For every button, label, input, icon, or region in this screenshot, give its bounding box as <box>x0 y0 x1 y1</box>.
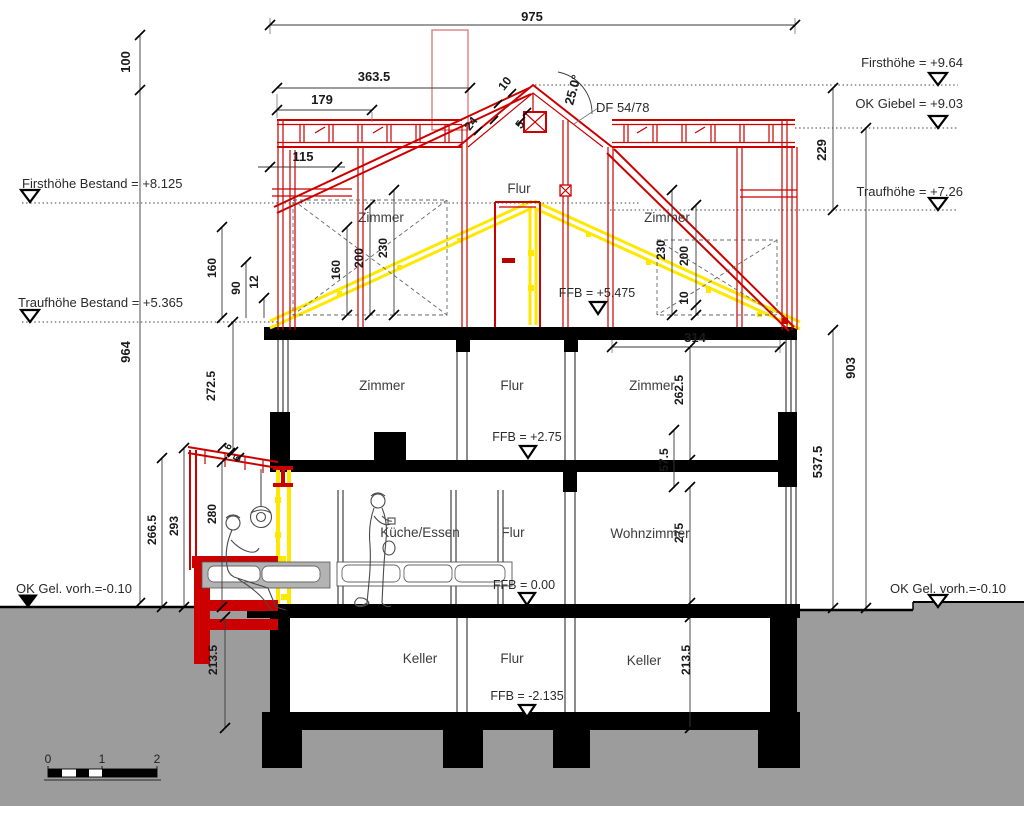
dim-dg-230-r: 230 <box>654 240 668 260</box>
dim-213-5-left: 213.5 <box>206 645 220 675</box>
scale-tick-0: 0 <box>45 752 52 766</box>
level-firsthoehe: Firsthöhe = +9.64 <box>861 55 963 70</box>
level-marker-traufhoehe-bestand <box>21 310 39 322</box>
room-label-og-zimmer-left: Zimmer <box>359 378 405 393</box>
dim-213-5-right: 213.5 <box>679 645 693 675</box>
door-handle <box>502 258 515 263</box>
level-ffb-og: FFB = +2.75 <box>492 430 562 444</box>
dim-229: 229 <box>814 139 829 161</box>
dim-roof-10: 10 <box>495 74 514 93</box>
scale-tick-1: 1 <box>99 752 106 766</box>
dim-964: 964 <box>118 340 133 362</box>
room-label-eg-flur: Flur <box>501 525 525 540</box>
dim-266-5: 266.5 <box>145 515 159 545</box>
room-label-eg-kueche: Küche/Essen <box>380 525 460 540</box>
roof-angle-label: 25.0° <box>561 73 583 106</box>
interior-sketches <box>202 469 512 611</box>
dim-100: 100 <box>118 51 133 73</box>
level-marker-traufhoehe <box>929 198 947 210</box>
dim-293: 293 <box>167 516 181 536</box>
chimney-outline <box>432 30 468 130</box>
scale-tick-2: 2 <box>154 752 161 766</box>
section-drawing: 975 363.5 179 115 314 100 964 160 90 12 … <box>0 0 1024 821</box>
level-gelaende-links: OK Gel. vorh.=-0.10 <box>16 581 132 596</box>
dim-eave-160: 160 <box>205 258 219 278</box>
dim-363-5: 363.5 <box>358 69 391 84</box>
dim-272-5: 272.5 <box>204 371 218 401</box>
room-label-dg-zimmer-right: Zimmer <box>644 210 690 225</box>
level-firsthoehe-bestand: Firsthöhe Bestand = +8.125 <box>22 176 182 191</box>
room-label-kg-flur: Flur <box>500 651 524 666</box>
existing-structure-yellow <box>270 201 800 604</box>
level-marker-firsthoehe <box>929 73 947 85</box>
section-drawing-page: 975 363.5 179 115 314 100 964 160 90 12 … <box>0 0 1024 821</box>
room-label-kg-keller-left: Keller <box>403 651 438 666</box>
dim-dg-200-l: 200 <box>352 248 366 268</box>
room-label-dg-flur: Flur <box>507 181 531 196</box>
dim-total-width: 975 <box>521 9 543 24</box>
room-label-og-zimmer-right: Zimmer <box>629 378 675 393</box>
level-marker-ffb-og <box>520 446 536 458</box>
level-marker-ffb-eg <box>519 593 535 605</box>
room-label-og-flur: Flur <box>500 378 524 393</box>
dim-dg-160: 160 <box>329 260 343 280</box>
room-label-dg-zimmer-left: Zimmer <box>358 210 404 225</box>
level-ffb-kg: FFB = -2.135 <box>490 689 563 703</box>
dim-dg-200-r: 200 <box>677 246 691 266</box>
level-marker-ok-giebel <box>929 116 947 128</box>
level-traufhoehe: Traufhöhe = +7.26 <box>857 184 964 199</box>
pendant-lamp-sketch <box>251 469 272 528</box>
dim-dg-230-l: 230 <box>376 238 390 258</box>
roof-window-label: DF 54/78 <box>596 100 649 115</box>
level-marker-firsthoehe-bestand <box>21 190 39 202</box>
dim-314: 314 <box>684 330 706 345</box>
room-label-kg-keller-right: Keller <box>627 653 662 668</box>
level-marker-gelaende-links <box>19 595 37 607</box>
room-label-eg-wohnzimmer: Wohnzimmer <box>610 526 690 541</box>
dim-eave-90: 90 <box>229 281 243 295</box>
level-marker-ffb-dg <box>590 302 606 314</box>
level-gelaende-rechts: OK Gel. vorh.=-0.10 <box>890 581 1006 596</box>
dim-eave-12: 12 <box>247 275 261 289</box>
dim-280: 280 <box>205 504 219 524</box>
level-ok-giebel: OK Giebel = +9.03 <box>855 96 963 111</box>
level-ffb-eg: FFB = 0.00 <box>493 578 555 592</box>
dim-537-5: 537.5 <box>810 446 825 479</box>
dim-903: 903 <box>843 357 858 379</box>
dim-115: 115 <box>293 149 314 164</box>
dim-dg-10: 10 <box>677 291 691 305</box>
dim-57-5: 57.5 <box>657 448 671 472</box>
dim-179: 179 <box>311 92 333 107</box>
windows-and-partitions <box>278 340 796 712</box>
level-traufhoehe-bestand: Traufhöhe Bestand = +5.365 <box>18 295 183 310</box>
standing-person-sketch <box>356 493 395 607</box>
level-ffb-dg: FFB = +5.475 <box>559 286 635 300</box>
